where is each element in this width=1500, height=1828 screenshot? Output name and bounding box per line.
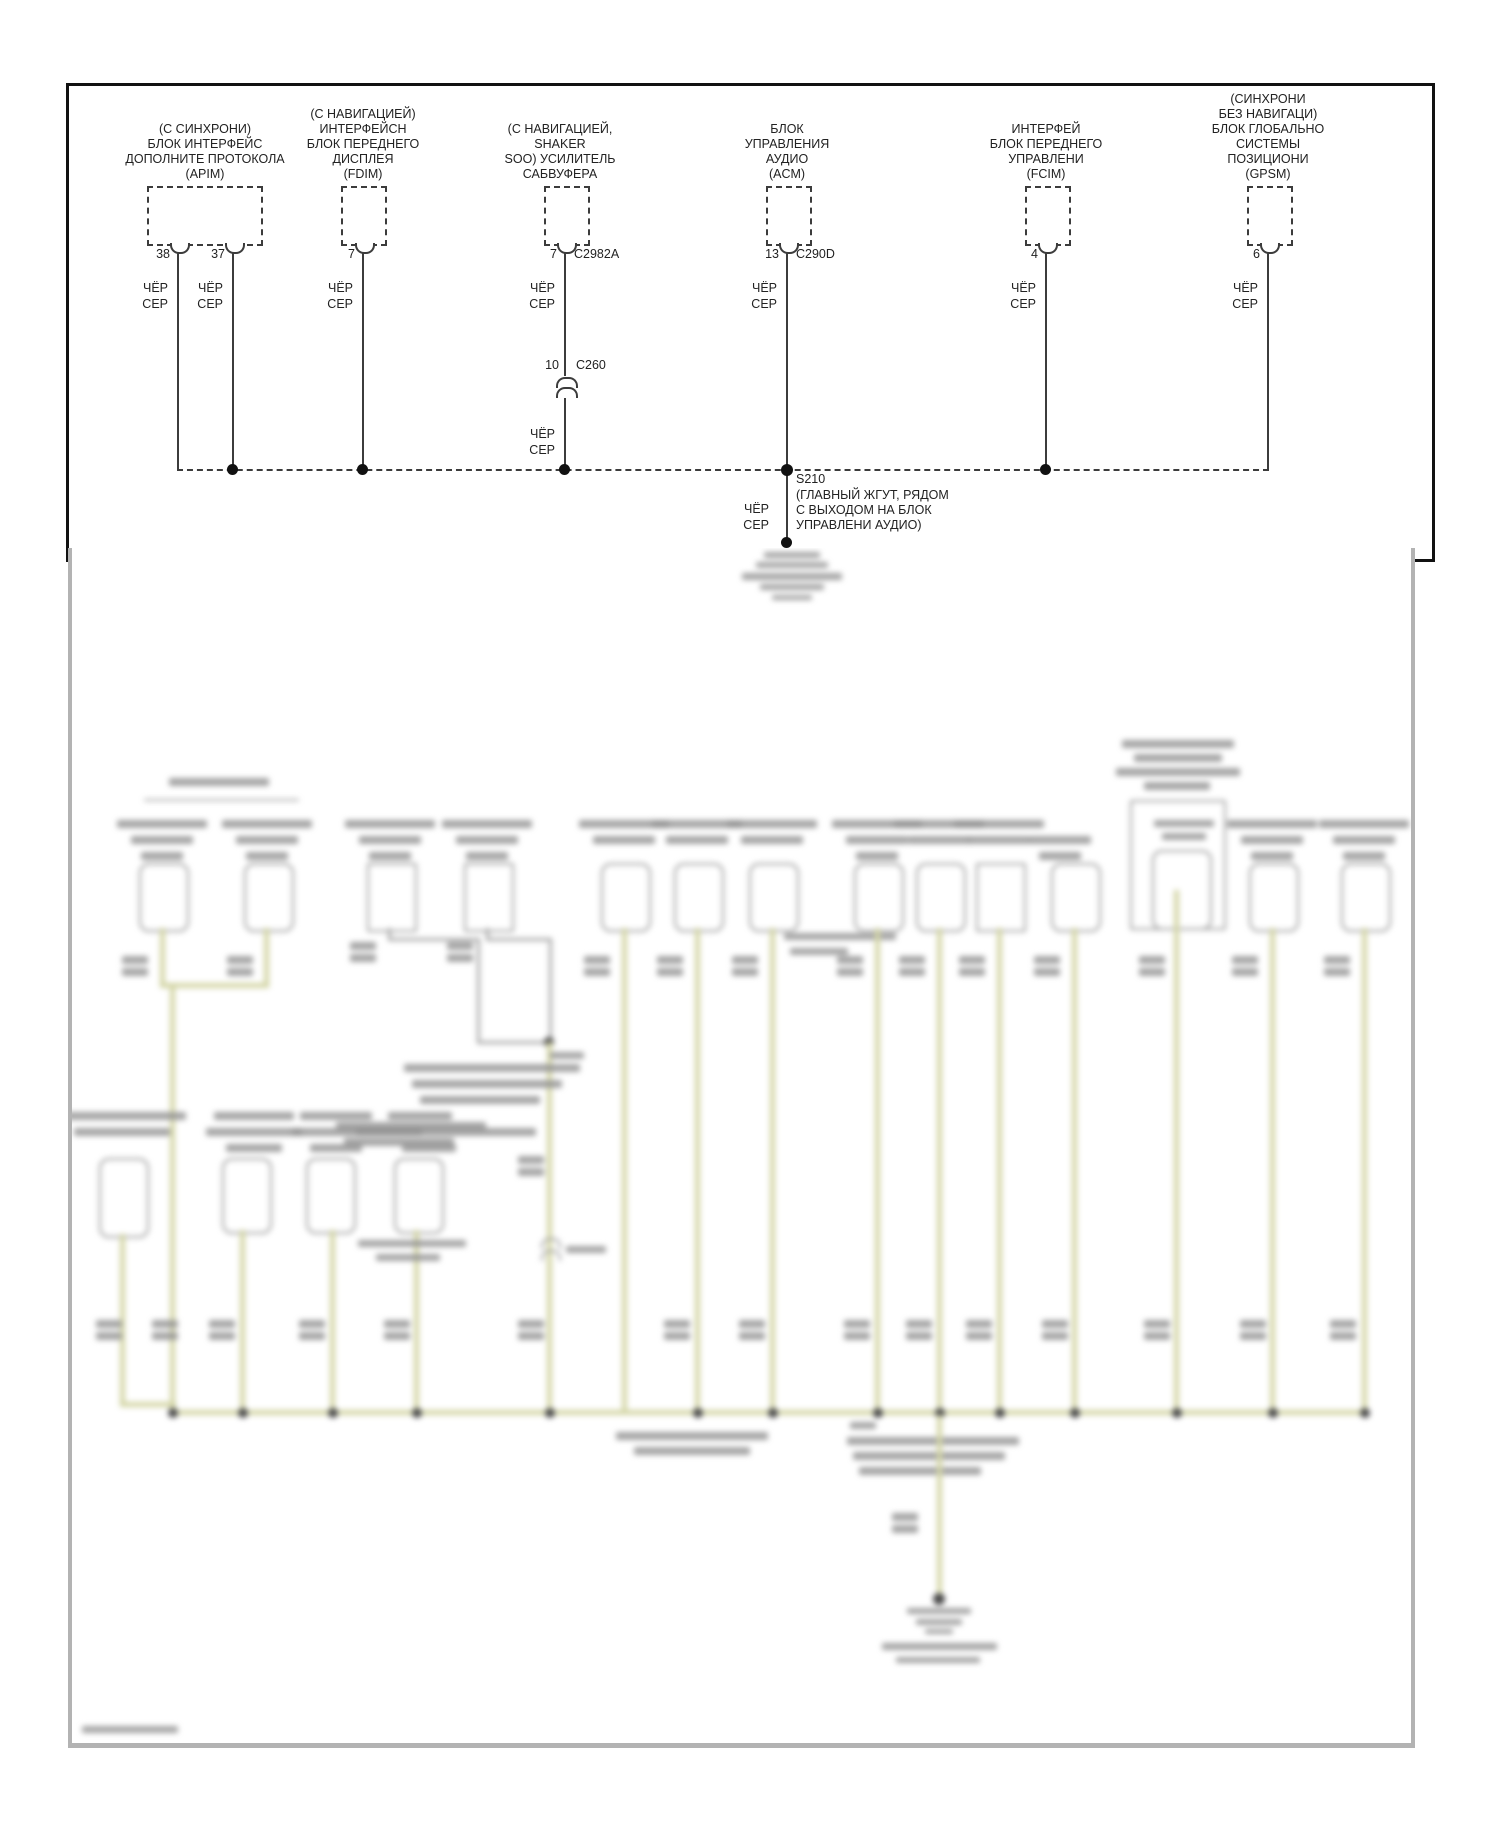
blurred-label [466, 852, 508, 860]
blurred-label [299, 1320, 325, 1328]
pin-number: 13 [741, 247, 779, 261]
blurred-component-box [916, 863, 966, 932]
blurred-label [1122, 740, 1234, 748]
blurred-label [566, 1246, 606, 1253]
blurred-label [1034, 956, 1060, 964]
wire-color-label: ЧЁР СЕР [313, 280, 353, 312]
component-box-shaker [544, 186, 590, 246]
blurred-label [117, 820, 207, 828]
blurred-label [358, 1240, 466, 1247]
blurred-component-box [306, 1158, 356, 1234]
blurred-label [634, 1447, 750, 1455]
component-box-fcim [1025, 186, 1071, 246]
blurred-junction-dot [768, 1408, 778, 1418]
blurred-label [850, 1422, 876, 1429]
blurred-component-box [1341, 863, 1391, 932]
blurred-wire [264, 928, 269, 987]
blurred-label [442, 820, 532, 828]
blurred-label [844, 1332, 870, 1340]
wire [362, 252, 364, 470]
pin-number: 37 [187, 247, 225, 261]
component-box-gpsm [1247, 186, 1293, 246]
wire-color-label: ЧЁР СЕР [183, 280, 223, 312]
blurred-label [837, 968, 863, 976]
blurred-wire [330, 1230, 335, 1414]
blurred-label [1042, 1320, 1068, 1328]
blurred-label [1042, 1332, 1068, 1340]
blurred-label [1232, 968, 1258, 976]
blurred-label [742, 573, 842, 580]
blurred-wire [695, 928, 700, 1414]
blurred-label [968, 836, 1030, 844]
blurred-junction-dot [238, 1408, 248, 1418]
blurred-junction-dot [693, 1408, 703, 1418]
blurred-label [384, 1320, 410, 1328]
blurred-label [908, 836, 970, 844]
blurred-label [1039, 852, 1081, 860]
splice-id: S210 [796, 472, 825, 487]
blurred-label [1324, 956, 1350, 964]
blurred-component-box [976, 863, 1026, 932]
component-label-apim: (С СИНХРОНИ) БЛОК ИНТЕРФЕЙС ДОПОЛНИТЕ ПР… [105, 122, 305, 182]
wiring-diagram-page: { "diagram": { "wire_color_label": "ЧЁР\… [0, 0, 1500, 1828]
blurred-label [846, 836, 908, 844]
blurred-label [518, 1320, 544, 1328]
blurred-component-box [222, 1158, 272, 1234]
wire [1045, 252, 1047, 470]
blurred-component-box [1152, 850, 1212, 930]
inline-connector-icon [556, 387, 578, 398]
blurred-wire [160, 928, 165, 987]
blurred-label [1240, 1332, 1266, 1340]
blurred-label [1240, 1320, 1266, 1328]
component-label-gpsm: (СИНХРОНИ БЕЗ НАВИГАЦИ) БЛОК ГЛОБАЛЬНО С… [1198, 92, 1338, 182]
blurred-label [664, 1332, 690, 1340]
blurred-wire [549, 938, 552, 1044]
blurred-junction-dot [995, 1408, 1005, 1418]
blurred-label [593, 836, 655, 844]
inline-connector-pin: 10 [521, 358, 559, 372]
blurred-label [122, 956, 148, 964]
blurred-wire [1174, 890, 1179, 1414]
splice-bus [177, 469, 1269, 471]
wire-color-label: ЧЁР СЕР [737, 280, 777, 312]
blurred-label [74, 1128, 170, 1136]
blurred-label [906, 1332, 932, 1340]
wire-color-label: ЧЁР СЕР [996, 280, 1036, 312]
blurred-label [226, 1144, 282, 1152]
blurred-label [925, 1629, 953, 1634]
wire-color-label: ЧЁР СЕР [515, 280, 555, 312]
blurred-junction-dot [1070, 1408, 1080, 1418]
component-label-shaker: (С НАВИГАЦИЕЙ, SHAKER SOO) УСИЛИТЕЛЬ САБ… [485, 122, 635, 182]
blurred-label [666, 836, 728, 844]
blurred-label [896, 1657, 980, 1663]
blurred-label [1029, 836, 1091, 844]
blurred-label [1144, 1320, 1170, 1328]
blurred-label [756, 562, 828, 568]
blurred-label [739, 1332, 765, 1340]
blurred-diagram-panel [68, 548, 1415, 1748]
blurred-label [206, 1128, 302, 1136]
blurred-wire [997, 928, 1002, 1414]
wire-color-label: ЧЁР СЕР [729, 501, 769, 533]
blurred-diagram-content [68, 548, 1415, 1748]
blurred-junction-dot [1360, 1408, 1370, 1418]
blurred-wire [937, 928, 942, 1414]
blurred-label [584, 956, 610, 964]
blurred-label [1144, 1332, 1170, 1340]
blurred-label [584, 968, 610, 976]
wire-color-label: ЧЁР СЕР [128, 280, 168, 312]
blurred-wire [120, 1402, 176, 1407]
blurred-label [310, 1144, 362, 1152]
blurred-label [1232, 956, 1258, 964]
blurred-label [1034, 968, 1060, 976]
blurred-wire [477, 1041, 552, 1044]
blurred-label [1343, 852, 1385, 860]
blurred-label [616, 1432, 768, 1440]
blurred-label [657, 956, 683, 964]
blurred-label [760, 584, 824, 590]
blurred-wire [170, 985, 175, 1414]
blurred-connector-icon [541, 1250, 561, 1261]
blurred-label [859, 1467, 981, 1475]
blurred-wire [1362, 928, 1367, 1414]
blurred-component-box [367, 863, 417, 932]
blurred-label [402, 1144, 456, 1152]
blurred-label [899, 968, 925, 976]
blurred-wire [388, 938, 480, 941]
blurred-label [856, 852, 898, 860]
blurred-label [899, 956, 925, 964]
blurred-junction-dot [1268, 1408, 1278, 1418]
component-label-acm: БЛОК УПРАВЛЕНИЯ АУДИО (ACM) [717, 122, 857, 182]
blurred-junction-dot [933, 1593, 945, 1605]
blurred-component-box [854, 863, 904, 932]
blurred-label [518, 1332, 544, 1340]
blurred-label [96, 1320, 122, 1328]
blurred-wire [160, 983, 269, 988]
blurred-label [657, 968, 683, 976]
blurred-label [356, 1128, 536, 1136]
blurred-label [1116, 768, 1240, 776]
blurred-label [1139, 956, 1165, 964]
connector-label: C2982A [574, 247, 619, 261]
blurred-wire [937, 1415, 942, 1597]
blurred-label [772, 595, 812, 600]
blurred-label [892, 1525, 918, 1533]
blurred-component-box [99, 1158, 149, 1238]
blurred-label [1144, 782, 1210, 790]
component-box-fdim [341, 186, 387, 246]
blurred-label [152, 1320, 178, 1328]
blurred-component-box [749, 863, 799, 932]
blurred-junction-dot [1172, 1408, 1182, 1418]
blurred-component-box [1249, 863, 1299, 932]
inline-connector-label: C260 [576, 358, 606, 372]
blurred-label [227, 968, 253, 976]
splice-note: (ГЛАВНЫЙ ЖГУТ, РЯДОМ С ВЫХОДОМ НА БЛОК У… [796, 488, 1031, 533]
pin-number: 38 [132, 247, 170, 261]
blurred-label [141, 852, 183, 860]
blurred-wire [477, 938, 480, 1044]
wire-color-label: ЧЁР СЕР [515, 426, 555, 458]
blurred-junction-dot [168, 1408, 178, 1418]
blurred-label [727, 820, 817, 828]
pin-number: 6 [1222, 247, 1260, 261]
blurred-label [447, 954, 473, 962]
wire [786, 252, 788, 543]
blurred-label [68, 1112, 186, 1120]
blurred-label [1241, 836, 1303, 844]
blurred-label [518, 1168, 544, 1176]
junction-dot [227, 464, 238, 475]
blurred-label [518, 1156, 544, 1164]
junction-dot [357, 464, 368, 475]
blurred-label [732, 968, 758, 976]
blurred-label [764, 552, 820, 558]
blurred-junction-dot [328, 1408, 338, 1418]
blurred-label [790, 948, 848, 955]
blurred-component-box [139, 863, 189, 932]
blurred-label [959, 968, 985, 976]
wire [564, 392, 566, 470]
blurred-component-box [674, 863, 724, 932]
pin-number: 4 [1000, 247, 1038, 261]
blurred-label [882, 1643, 997, 1650]
blurred-label [741, 836, 803, 844]
blurred-label [209, 1332, 235, 1340]
blurred-wire [770, 928, 775, 1414]
blurred-wire [875, 928, 880, 1414]
wire-color-label: ЧЁР СЕР [1218, 280, 1258, 312]
blurred-connector-icon [541, 1238, 561, 1249]
blurred-component-box [601, 863, 651, 932]
blurred-label [1162, 833, 1206, 840]
blurred-label [550, 1052, 584, 1059]
blurred-label [82, 1726, 178, 1733]
junction-dot [559, 464, 570, 475]
splice-dot-s210 [781, 464, 793, 476]
blurred-label [144, 799, 299, 801]
blurred-label [131, 836, 193, 844]
blurred-label [966, 1320, 992, 1328]
ground-junction-dot [781, 537, 792, 548]
blurred-label [966, 1332, 992, 1340]
blurred-label [359, 836, 421, 844]
blurred-wire [547, 1042, 552, 1414]
blurred-label [222, 820, 312, 828]
blurred-label [954, 820, 1044, 828]
blurred-label [1251, 852, 1293, 860]
blurred-label [152, 1332, 178, 1340]
blurred-label [1154, 820, 1214, 827]
blurred-label [412, 1080, 562, 1088]
blurred-label [246, 852, 288, 860]
blurred-label [209, 1320, 235, 1328]
blurred-junction-dot [545, 1408, 555, 1418]
blurred-label [732, 956, 758, 964]
blurred-wire [486, 938, 552, 941]
blurred-label [388, 1112, 452, 1120]
blurred-label [847, 1437, 1019, 1445]
blurred-label [837, 956, 863, 964]
connector-label: C290D [796, 247, 835, 261]
blurred-label [1139, 968, 1165, 976]
blurred-label [853, 1452, 1005, 1460]
component-box-apim [147, 186, 263, 246]
blurred-label [1319, 820, 1409, 828]
pin-number: 7 [317, 247, 355, 261]
blurred-component-box [394, 1158, 444, 1234]
blurred-label [169, 778, 269, 786]
blurred-label [1333, 836, 1395, 844]
blurred-wire [1270, 928, 1275, 1414]
junction-dot [1040, 464, 1051, 475]
blurred-wire [622, 928, 627, 1414]
blurred-label [300, 1112, 372, 1120]
blurred-label [376, 1254, 440, 1261]
blurred-component-box [1051, 863, 1101, 932]
blurred-label [916, 1619, 962, 1625]
blurred-label [456, 836, 518, 844]
blurred-label [236, 836, 298, 844]
blurred-label [369, 852, 411, 860]
component-box-acm [766, 186, 812, 246]
blurred-label [1324, 968, 1350, 976]
blurred-label [350, 954, 376, 962]
blurred-label [1134, 754, 1222, 762]
blurred-component-box [464, 863, 514, 932]
pin-number: 7 [519, 247, 557, 261]
blurred-label [384, 1332, 410, 1340]
blurred-label [959, 956, 985, 964]
blurred-label [122, 968, 148, 976]
blurred-label [299, 1332, 325, 1340]
blurred-label [420, 1096, 540, 1104]
blurred-label [907, 1608, 971, 1614]
blurred-label [350, 942, 376, 950]
blurred-label [447, 942, 473, 950]
blurred-wire [1072, 928, 1077, 1414]
blurred-component-box [244, 863, 294, 932]
blurred-label [892, 1513, 918, 1521]
blurred-label [214, 1112, 294, 1120]
wire [564, 252, 566, 376]
component-label-fcim: ИНТЕРФЕЙ БЛОК ПЕРЕДНЕГО УПРАВЛЕНИ (FCIM) [976, 122, 1116, 182]
blurred-label [844, 1320, 870, 1328]
blurred-label [1227, 820, 1317, 828]
blurred-label [404, 1064, 580, 1072]
blurred-label [96, 1332, 122, 1340]
blurred-label [664, 1320, 690, 1328]
wire [177, 252, 179, 470]
blurred-label [906, 1320, 932, 1328]
blurred-junction-dot [412, 1408, 422, 1418]
blurred-wire [240, 1230, 245, 1414]
blurred-label [1330, 1332, 1356, 1340]
blurred-label [227, 956, 253, 964]
component-label-fdim: (С НАВИГАЦИЕЙ) ИНТЕРФЕЙСН БЛОК ПЕРЕДНЕГО… [293, 107, 433, 182]
blurred-label [345, 820, 435, 828]
blurred-label [1330, 1320, 1356, 1328]
wire [1267, 252, 1269, 470]
blurred-junction-dot [873, 1408, 883, 1418]
wire [232, 252, 234, 470]
blurred-label [739, 1320, 765, 1328]
